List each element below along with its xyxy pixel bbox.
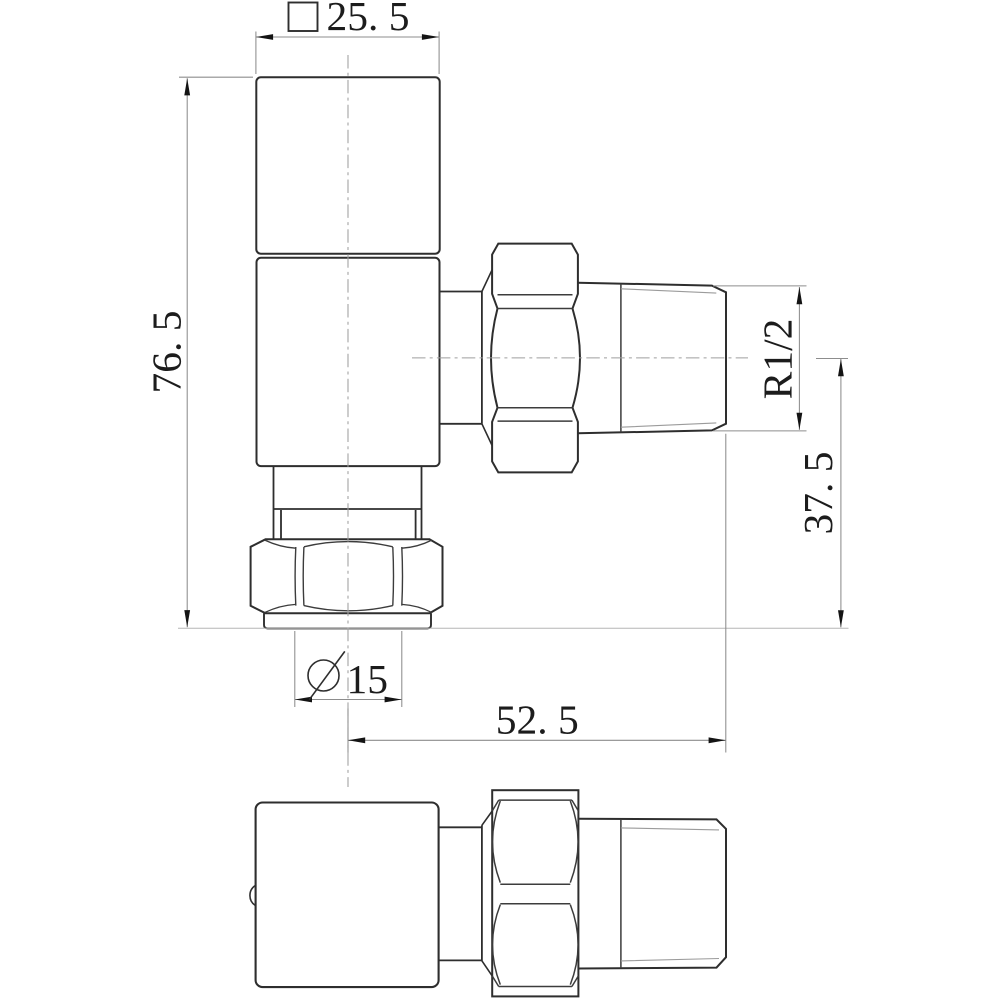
svg-text:37. 5: 37. 5 <box>795 452 841 535</box>
svg-text:25. 5: 25. 5 <box>327 0 410 39</box>
svg-text:R1/2: R1/2 <box>755 319 801 400</box>
svg-text:15: 15 <box>347 656 389 702</box>
svg-text:76. 5: 76. 5 <box>144 311 190 394</box>
svg-text:52. 5: 52. 5 <box>496 696 579 742</box>
